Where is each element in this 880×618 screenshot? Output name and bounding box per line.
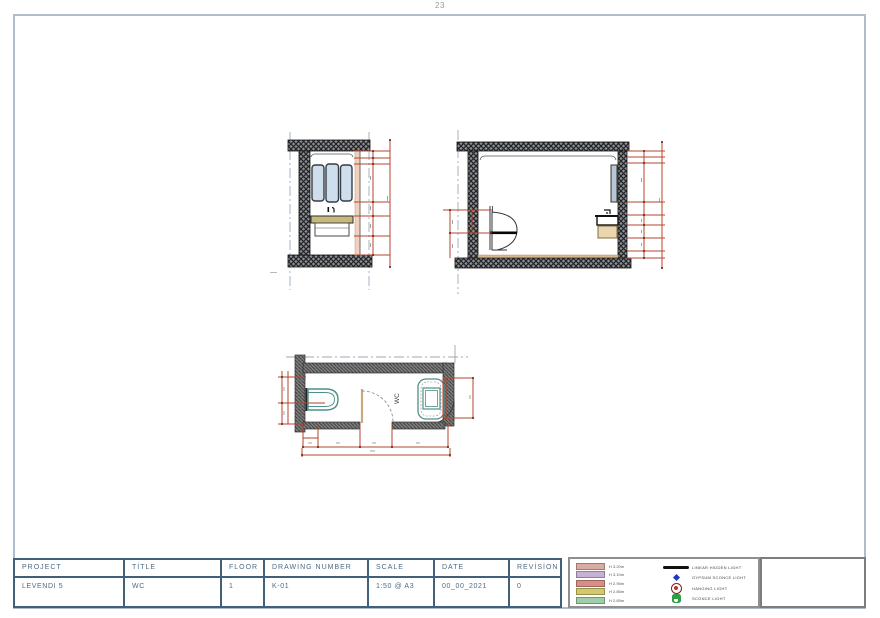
drawing-number-label: DRAWİNG NUMBER [265,560,367,578]
sink-basin [595,215,618,225]
title-block: PROJECT LEVENDI 5 TİTLE WC FLOOR 1 DRAWİ… [13,558,562,608]
title-block-cell-floor: FLOOR 1 [222,560,265,606]
legend-box: H 3.20m H 3.10m H 2.95m H 2.85m H 2.65m … [568,557,760,608]
legend-row: SCONCE LIGHT [660,594,756,604]
linear-hidden-light-icon [663,566,689,569]
legend-row: H 3.20m [576,562,660,570]
light-label: SCONCE LIGHT [692,596,726,601]
height-swatch-label: H 2.85m [609,589,624,594]
title-block-cell-drawing-number: DRAWİNG NUMBER K-01 [265,560,369,606]
sheet-border [13,14,866,609]
vanity-cabinet [315,223,349,236]
scale-value: 1:50 @ A3 [369,578,433,590]
title-block-cell-title: TİTLE WC [125,560,222,606]
drawing-sheet-page: { "page": { "page_number": "23" }, "plan… [0,0,880,618]
height-swatch-label: H 2.65m [609,598,624,603]
toilet-side-view [490,206,517,250]
legend-row: H 2.65m [576,596,660,604]
floor-plan-drawing: WC [270,342,482,468]
height-swatch [576,580,605,587]
project-value: LEVENDI 5 [15,578,123,590]
height-swatch-label: H 2.95m [609,581,624,586]
title-label: TİTLE [125,560,220,578]
dimension-lines-left [443,210,492,258]
page-number: 23 [0,1,880,10]
gypsum-sconce-light-icon [672,574,679,581]
revision-value: 0 [510,578,560,590]
revision-label: REVİSİON [510,560,560,578]
title-value: WC [125,578,220,590]
light-label: LINEAR HIDDEN LIGHT [692,565,742,570]
dimension-lines-right [627,142,665,268]
height-swatch [576,571,605,578]
mirror-side-view [611,165,617,202]
height-legend: H 3.20m H 3.10m H 2.95m H 2.85m H 2.65m [576,562,660,604]
project-label: PROJECT [15,560,123,578]
title-block-cell-project: PROJECT LEVENDI 5 [15,560,125,606]
wall-finish-strip [355,151,360,255]
mirror-panels [312,164,352,202]
company-logo-box [760,557,866,608]
height-swatch-label: H 3.20m [609,564,624,569]
elevation-a-drawing [266,124,398,296]
faucet-icon [604,210,610,214]
vanity-plan [418,379,444,419]
ceiling-bulkhead [480,156,616,160]
door-swing-arc [362,391,393,422]
legend-row: H 3.10m [576,571,660,579]
hanging-light-icon [671,583,682,594]
title-block-cell-revision: REVİSİON 0 [510,560,560,606]
drawing-number-value: K-01 [265,578,367,590]
height-swatch [576,597,605,604]
light-label: HANGING LIGHT [692,586,727,591]
faucet-icon [328,207,335,213]
room-label: WC [394,393,401,404]
ceiling-bulkhead [311,154,353,157]
note-mark [270,272,277,273]
scale-label: SCALE [369,560,433,578]
legend-row: LINEAR HIDDEN LIGHT [660,562,756,572]
floor-value: 1 [222,578,263,590]
floor-finish-line [478,255,618,258]
light-legend: LINEAR HIDDEN LIGHT GYPSUM SCONCE LIGHT … [660,562,756,604]
height-swatch [576,563,605,570]
legend-row: GYPSUM SCONCE LIGHT [660,573,756,583]
floor-label: FLOOR [222,560,263,578]
height-swatch-label: H 3.10m [609,572,624,577]
light-label: GYPSUM SCONCE LIGHT [692,575,746,580]
date-label: DATE [435,560,508,578]
date-value: 00_00_2021 [435,578,508,590]
vanity-countertop [311,216,353,223]
legend-row: HANGING LIGHT [660,583,756,593]
height-swatch [576,588,605,595]
elevation-b-drawing [441,126,667,298]
title-block-cell-scale: SCALE 1:50 @ A3 [369,560,435,606]
sconce-light-icon [672,594,681,603]
toilet-plan [306,388,339,411]
title-block-cell-date: DATE 00_00_2021 [435,560,510,606]
wall-sections [455,142,631,268]
legend-row: H 2.85m [576,588,660,596]
legend-row: H 2.95m [576,579,660,587]
vanity-cabinet [598,226,617,238]
dimension-ticks [449,141,663,269]
